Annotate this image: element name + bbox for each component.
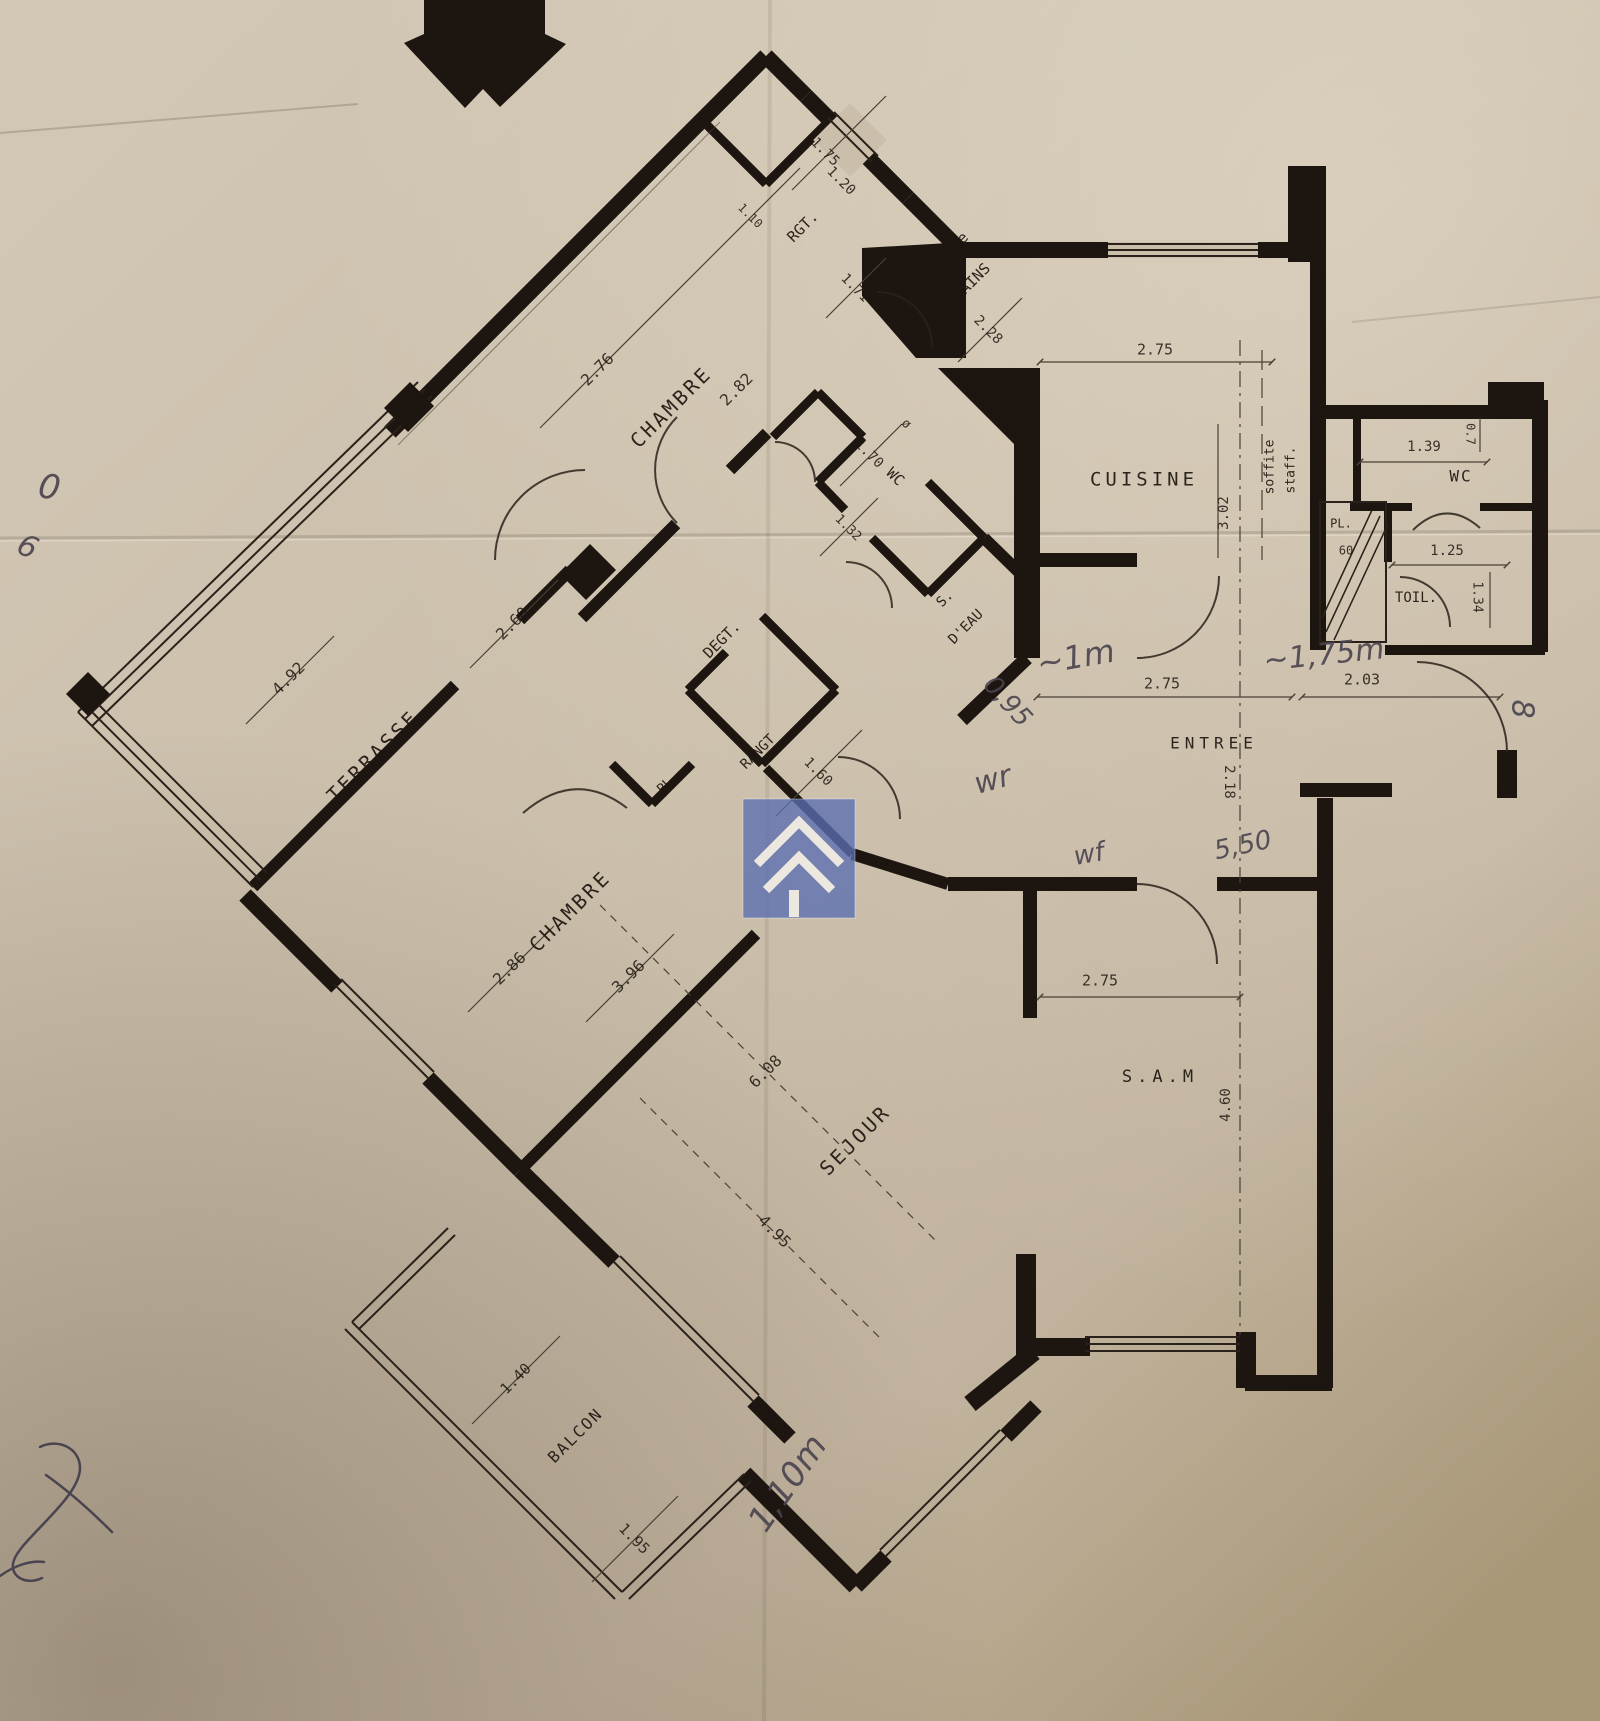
- room-label-entree: ENTREE: [1170, 734, 1258, 753]
- dimension-label: 60: [1339, 544, 1353, 558]
- room-label-wc: WC: [1449, 467, 1472, 486]
- dimension-label: 4.60: [1218, 1088, 1234, 1122]
- dimension-label: 2.75: [1144, 675, 1180, 693]
- dimension-label: 1.39: [1407, 439, 1441, 455]
- dimension-label: 2.03: [1344, 671, 1380, 689]
- dimension-label: 2.75: [1137, 341, 1173, 359]
- dimension-label: 0.7: [1464, 423, 1478, 445]
- dimension-label: 2.75: [1082, 972, 1118, 990]
- dimension-label: 1.34: [1470, 581, 1485, 612]
- room-label-s-a-m: S.A.M: [1122, 1067, 1198, 1087]
- dimension-label: 2.18: [1221, 765, 1237, 799]
- floorplan-page: CHAMBRE2.762.82RGT.1.751.201.711.10S. de…: [0, 0, 1600, 1721]
- room-label-soffite: soffite: [1263, 439, 1278, 494]
- room-label-staff-: staff.: [1284, 447, 1299, 494]
- dimension-label: 3.02: [1216, 496, 1232, 530]
- room-label-pl-: PL.: [1330, 517, 1352, 531]
- floorplan-drawing: CHAMBRE2.762.82RGT.1.751.201.711.10S. de…: [0, 0, 1600, 1721]
- room-label-cuisine: CUISINE: [1090, 469, 1198, 491]
- watermark-logo: [743, 799, 855, 918]
- dimension-label: 1.25: [1430, 543, 1464, 559]
- room-label-toil-: TOIL.: [1395, 590, 1437, 606]
- handwritten-note: 8: [1505, 699, 1540, 718]
